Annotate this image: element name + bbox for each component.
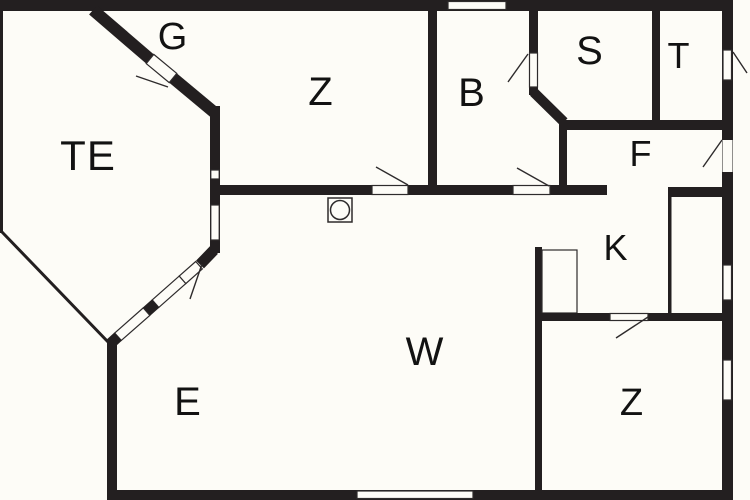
wall-te-diag-mid: [147, 304, 156, 312]
wall-te-diag-bottom: [110, 337, 118, 344]
wall-k-bottom-2: [648, 313, 722, 321]
wall-hall-3: [550, 185, 607, 195]
f-k-walls: [535, 123, 722, 490]
window-te-small: [211, 170, 219, 179]
wall-te-diag-top: [200, 250, 214, 265]
wall-hall-2: [408, 185, 513, 195]
room-label-b: B: [458, 73, 486, 113]
door-swing-s: [508, 54, 528, 82]
window-te-large: [211, 205, 219, 240]
terrace-diagonal-wall: [110, 250, 214, 344]
wall-g-diagonal-upper: [93, 10, 150, 59]
window-b-top: [448, 2, 506, 10]
window-storage-right: [723, 265, 732, 300]
wall-b-s-upper: [529, 11, 538, 53]
door-z-bottom: [610, 314, 648, 321]
terrace-right-wall: [210, 106, 220, 253]
room-label-s: S: [576, 31, 604, 71]
wall-s-t-divider: [652, 11, 660, 130]
window-te-diag-2: [115, 308, 150, 341]
door-swing-entrance-f: [703, 140, 722, 167]
g-diagonal-wall: [93, 10, 215, 113]
door-swing-z-top: [376, 167, 408, 185]
window-te-diag-1: [152, 276, 186, 307]
room-label-f: F: [630, 136, 653, 172]
floor-plan-drawing: [0, 0, 750, 500]
door-s: [530, 53, 538, 87]
storage-partition-line: [668, 197, 672, 313]
terrace-boundary-diagonal: [2, 232, 110, 344]
room-label-w: W: [406, 332, 445, 372]
wall-left-lower: [107, 343, 117, 500]
window-t-right: [723, 50, 732, 80]
hall-wall: [215, 167, 607, 195]
wall-hall-1: [215, 185, 372, 195]
wall-g-diagonal-lower: [173, 78, 215, 113]
room-label-k: K: [603, 230, 628, 266]
door-entrance-f: [723, 140, 733, 172]
wall-b-s-diagonal: [534, 92, 565, 122]
wall-f-left: [559, 123, 567, 190]
door-b: [513, 186, 550, 195]
floor-plan: TE G Z B S T F K W E Z: [0, 0, 750, 500]
room-label-te: TE: [60, 135, 116, 177]
wall-s-bottom: [560, 120, 652, 130]
door-z-top: [372, 186, 408, 195]
wall-z-b-divider: [428, 11, 437, 190]
stove-icon: [328, 198, 352, 222]
room-label-g: G: [158, 18, 189, 56]
wall-top: [0, 0, 733, 11]
room-label-z-top: Z: [308, 72, 333, 112]
window-z-bottom-right: [723, 360, 732, 400]
room-label-z-bottom: Z: [620, 384, 644, 422]
wall-k-bottom-1: [535, 313, 610, 321]
room-label-e: E: [174, 382, 202, 422]
wall-t-bottom: [652, 120, 722, 130]
window-t-opening-mark: [733, 52, 747, 73]
wall-k-left: [535, 247, 542, 490]
wall-k-top-right: [668, 187, 722, 197]
kitchen-fixture: [542, 250, 577, 313]
room-label-t: T: [668, 38, 691, 74]
door-g: [146, 54, 177, 82]
window-w-bottom: [357, 491, 473, 499]
terrace-boundary-left: [0, 11, 3, 233]
door-swing-b: [517, 168, 549, 186]
